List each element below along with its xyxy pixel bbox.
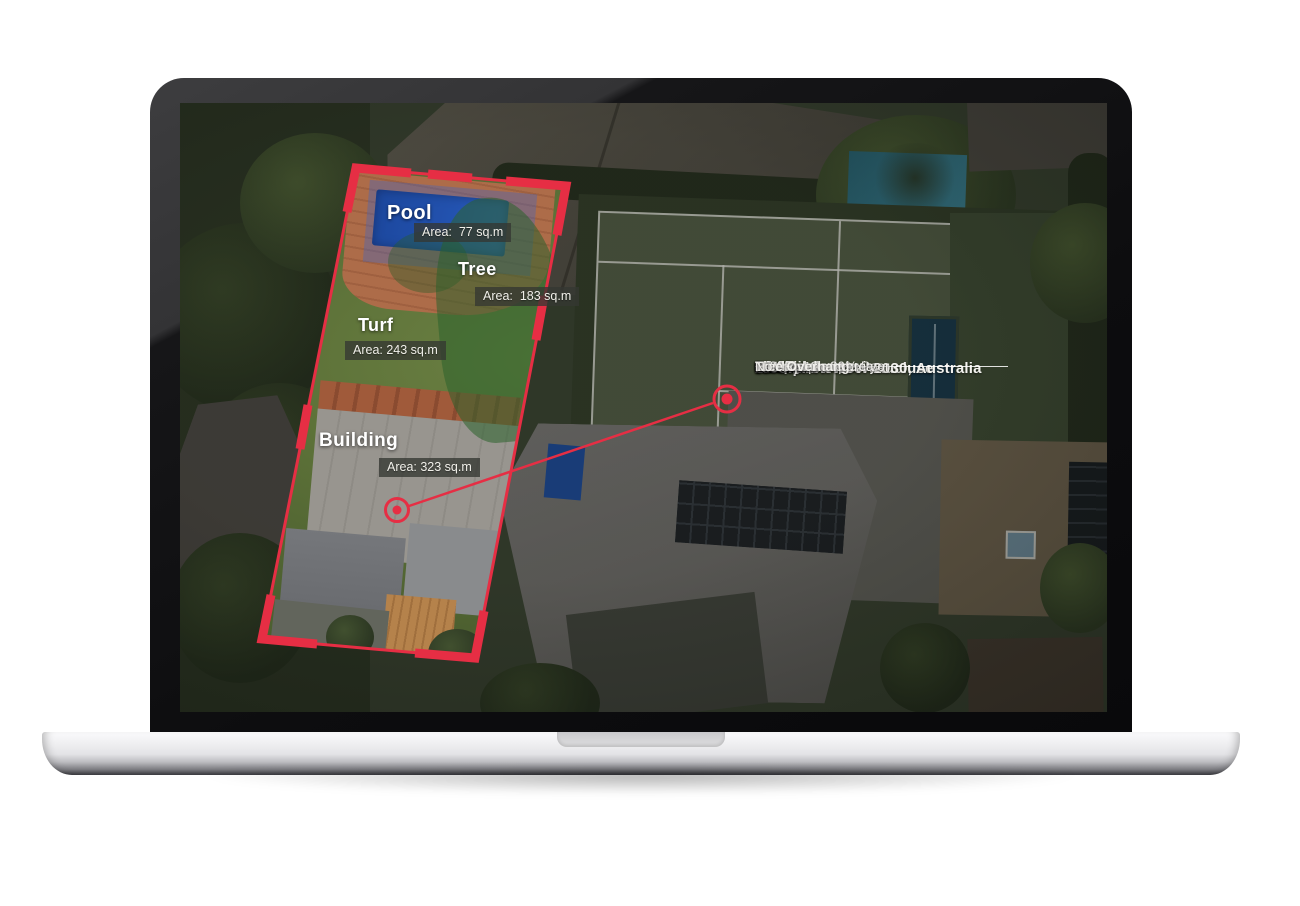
laptop-lid: Pool Area: 77 sq.m Tree Area: 183 sq.m T… [150, 78, 1132, 732]
parcel-annotations [180, 103, 1107, 712]
laptop-screen: Pool Area: 77 sq.m Tree Area: 183 sq.m T… [180, 103, 1107, 712]
pool-area-badge: Area: 77 sq.m [414, 223, 511, 242]
building-label: Building [319, 430, 398, 452]
laptop-shadow [30, 770, 1252, 816]
aerial-map: Pool Area: 77 sq.m Tree Area: 183 sq.m T… [180, 103, 1107, 712]
connector-line [409, 403, 713, 506]
laptop-mockup: Pool Area: 77 sq.m Tree Area: 183 sq.m T… [0, 0, 1300, 906]
corner-bracket-top-right [506, 181, 566, 235]
turf-area-badge: Area: 243 sq.m [345, 341, 446, 360]
edge-tick-left [300, 405, 308, 449]
corner-bracket-bottom-left [262, 595, 317, 644]
tree-area-badge: Area: 183 sq.m [475, 287, 579, 306]
risk-tree-overhang-value: No [755, 359, 772, 376]
building-area-badge: Area: 323 sq.m [379, 458, 480, 477]
tree-label: Tree [458, 259, 497, 280]
edge-tick-top [428, 174, 472, 178]
address-marker-dot [722, 394, 733, 405]
laptop-notch [557, 732, 725, 747]
turf-label: Turf [358, 315, 393, 336]
pool-label: Pool [387, 202, 432, 225]
corner-bracket-bottom-right [415, 611, 484, 658]
laptop-base [42, 732, 1240, 775]
building-marker-dot [393, 506, 402, 515]
